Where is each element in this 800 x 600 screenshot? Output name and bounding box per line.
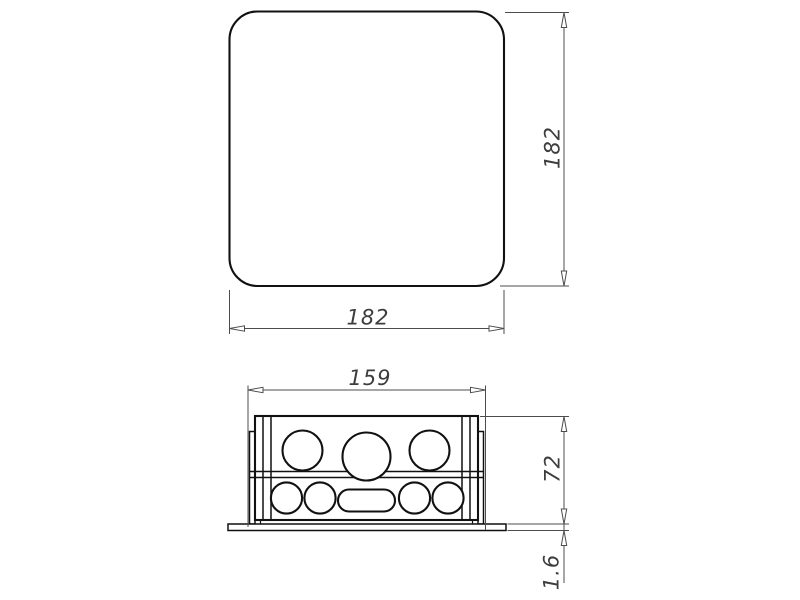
dim-body-height: 72 (480, 417, 569, 525)
dim-label-body-height: 72 (541, 454, 565, 483)
knockout-circle-bottom-4 (432, 482, 463, 513)
top-view (230, 12, 505, 287)
dim-label-body-width: 159 (348, 366, 391, 390)
technical-drawing-canvas: 182 182 (0, 0, 800, 600)
mounting-flange (228, 524, 506, 531)
knockout-circle-bottom-3 (399, 482, 430, 513)
technical-drawing-page: 182 182 (0, 0, 800, 600)
dim-cover-width: 182 (230, 290, 505, 334)
dim-label-cover-width: 182 (346, 306, 389, 330)
knockout-circle-top-left (283, 431, 323, 471)
front-view (228, 416, 506, 531)
knockout-circle-bottom-2 (304, 482, 335, 513)
cover-outline (230, 12, 505, 287)
knockout-slot (338, 490, 395, 512)
knockout-circle-top-right (410, 431, 450, 471)
knockout-circle-top-center (343, 433, 391, 481)
dim-label-cover-height: 182 (541, 126, 565, 169)
dim-cover-height: 182 (500, 13, 569, 287)
dim-label-flange-thickness: 1.6 (540, 554, 564, 590)
knockout-circle-bottom-1 (271, 482, 302, 513)
dim-flange-thickness: 1.6 (508, 524, 570, 590)
